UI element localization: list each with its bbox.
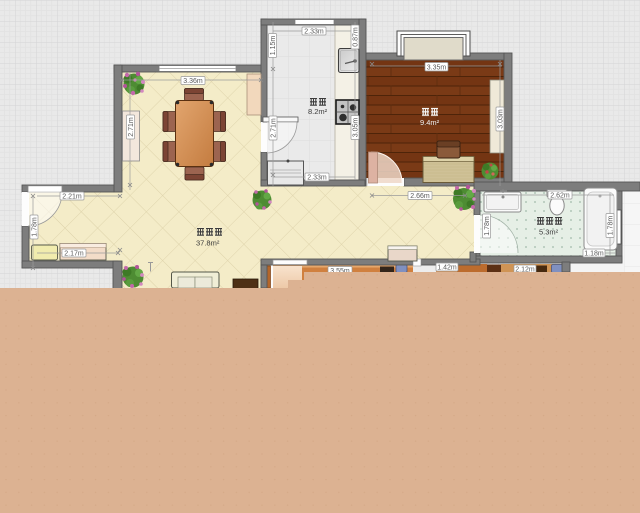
svg-text:3.36m: 3.36m	[183, 78, 203, 85]
svg-text:2.62m: 2.62m	[550, 193, 570, 200]
svg-text:1.78m: 1.78m	[32, 217, 39, 237]
svg-text:1.15m: 1.15m	[270, 36, 277, 56]
svg-text:2.71m: 2.71m	[128, 117, 135, 137]
svg-text:3.03m: 3.03m	[498, 109, 505, 129]
svg-text:1.42m: 1.42m	[437, 265, 457, 272]
svg-text:1.18m: 1.18m	[584, 251, 604, 258]
svg-text:3.05m: 3.05m	[353, 118, 360, 138]
svg-text:2.21m: 2.21m	[62, 194, 82, 201]
svg-text:0.87m: 0.87m	[353, 27, 360, 47]
svg-text:2.33m: 2.33m	[307, 175, 327, 182]
svg-text:2.71m: 2.71m	[271, 118, 278, 138]
svg-text:1.78m: 1.78m	[608, 216, 615, 236]
svg-text:2.17m: 2.17m	[64, 251, 84, 258]
svg-text:8.2m²: 8.2m²	[308, 107, 328, 116]
svg-text:37.8m²: 37.8m²	[196, 239, 220, 248]
svg-text:9.4m²: 9.4m²	[420, 118, 440, 127]
svg-text:1.78m: 1.78m	[484, 216, 491, 236]
svg-text:2.33m: 2.33m	[304, 29, 324, 36]
svg-text:5.3m²: 5.3m²	[539, 228, 559, 237]
svg-text:3.35m: 3.35m	[427, 64, 447, 71]
svg-text:2.66m: 2.66m	[410, 193, 430, 200]
